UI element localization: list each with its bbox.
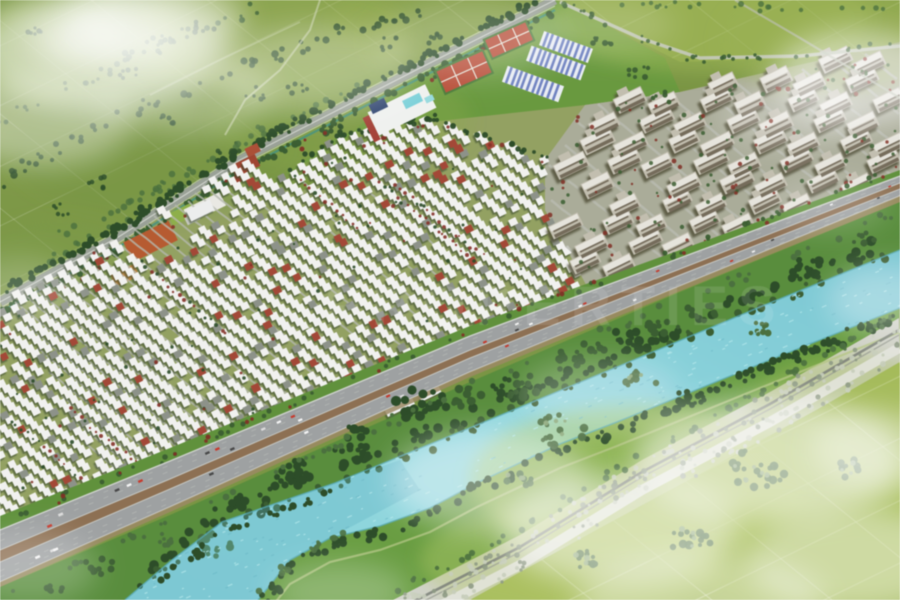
svg-text:PROPERTIES: PROPERTIES xyxy=(325,274,786,337)
